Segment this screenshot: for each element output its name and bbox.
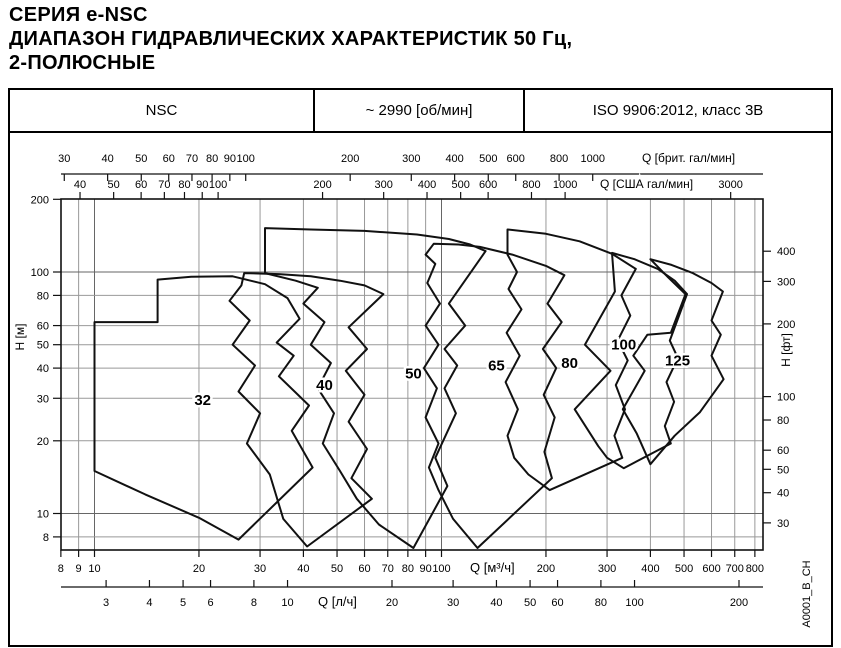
tick-label-h-ft: 60 <box>777 445 789 457</box>
page-title: СЕРИЯ e-NSC ДИАПАЗОН ГИДРАВЛИЧЕСКИХ ХАРА… <box>9 3 572 75</box>
tick-label-imp-gpm: 300 <box>402 153 420 165</box>
tick-label-m3h: 600 <box>702 563 720 575</box>
tick-label-ls: 20 <box>386 597 398 609</box>
tick-label-m3h: 70 <box>382 563 394 575</box>
tick-label-imp-gpm: 800 <box>550 153 568 165</box>
header-series: NSC <box>10 90 315 131</box>
tick-label-h-m: 200 <box>31 194 49 206</box>
axis-title-ls: Q [л/ч] <box>318 594 357 609</box>
tick-label-h-m: 100 <box>31 267 49 279</box>
tick-label-us-gpm: 40 <box>74 179 86 191</box>
tick-label-us-gpm: 200 <box>313 179 331 191</box>
tick-label-h-ft: 40 <box>777 488 789 500</box>
tick-label-h-ft: 200 <box>777 319 795 331</box>
tick-label-ls: 200 <box>730 597 748 609</box>
tick-label-us-gpm: 50 <box>108 179 120 191</box>
tick-label-imp-gpm: 90 <box>224 153 236 165</box>
tick-label-imp-gpm: 500 <box>479 153 497 165</box>
tick-label-us-gpm: 400 <box>418 179 436 191</box>
tick-label-ls: 30 <box>447 597 459 609</box>
tick-label-ls: 5 <box>180 597 186 609</box>
tick-label-ls: 4 <box>146 597 152 609</box>
tick-label-m3h: 700 <box>726 563 744 575</box>
tick-label-imp-gpm: 80 <box>206 153 218 165</box>
tick-label-ls: 3 <box>103 597 109 609</box>
tick-label-ls: 40 <box>490 597 502 609</box>
chart-frame: NSC ~ 2990 [об/мин] ISO 9906:2012, класс… <box>8 88 833 647</box>
tick-label-m3h: 20 <box>193 563 205 575</box>
axis-title-m3h: Q [м³/ч] <box>470 560 515 575</box>
tick-label-us-gpm: 100 <box>209 179 227 191</box>
tick-label-m3h: 80 <box>402 563 414 575</box>
header-standard: ISO 9906:2012, класс 3В <box>525 90 831 131</box>
tick-label-ls: 6 <box>207 597 213 609</box>
tick-label-h-m: 20 <box>37 436 49 448</box>
tick-label-us-gpm: 80 <box>178 179 190 191</box>
tick-label-imp-gpm: 1000 <box>580 153 604 165</box>
tick-label-h-m: 40 <box>37 363 49 375</box>
region-label-125: 125 <box>665 353 690 370</box>
region-label-100: 100 <box>611 337 636 354</box>
tick-label-imp-gpm: 60 <box>163 153 175 165</box>
tick-label-h-m: 30 <box>37 393 49 405</box>
tick-label-ls: 8 <box>251 597 257 609</box>
tick-label-ls: 10 <box>281 597 293 609</box>
tick-label-us-gpm: 60 <box>135 179 147 191</box>
region-label-32: 32 <box>194 392 211 409</box>
tick-label-h-m: 60 <box>37 321 49 333</box>
tick-label-imp-gpm: 30 <box>58 153 70 165</box>
axis-title-h-m: H [м] <box>13 324 27 351</box>
tick-label-m3h: 8 <box>58 563 64 575</box>
tick-label-m3h: 50 <box>331 563 343 575</box>
tick-label-m3h: 40 <box>297 563 309 575</box>
tick-label-h-ft: 400 <box>777 246 795 258</box>
tick-label-imp-gpm: 70 <box>186 153 198 165</box>
tick-label-us-gpm: 800 <box>522 179 540 191</box>
tick-label-h-ft: 30 <box>777 518 789 530</box>
tick-label-m3h: 800 <box>746 563 764 575</box>
tick-label-imp-gpm: 100 <box>237 153 255 165</box>
tick-label-m3h: 60 <box>358 563 370 575</box>
tick-label-us-gpm: 1000 <box>553 179 577 191</box>
tick-label-h-ft: 300 <box>777 276 795 288</box>
tick-label-ls: 100 <box>625 597 643 609</box>
tick-label-us-gpm: 300 <box>374 179 392 191</box>
tick-label-us-gpm: 500 <box>451 179 469 191</box>
tick-label-h-ft: 100 <box>777 392 795 404</box>
region-label-65: 65 <box>488 358 505 375</box>
axis-title-us-gpm: Q [США гал/мин] <box>600 177 693 191</box>
tick-label-imp-gpm: 40 <box>102 153 114 165</box>
tick-label-m3h: 500 <box>675 563 693 575</box>
tick-label-m3h: 90 <box>419 563 431 575</box>
tick-label-h-m: 8 <box>43 532 49 544</box>
tick-label-imp-gpm: 400 <box>445 153 463 165</box>
title-line-1: СЕРИЯ e-NSC <box>9 3 572 27</box>
tick-label-imp-gpm: 50 <box>135 153 147 165</box>
tick-label-h-ft: 80 <box>777 415 789 427</box>
region-label-80: 80 <box>561 355 578 372</box>
tick-label-us-gpm: 3000 <box>718 179 742 191</box>
title-line-2: ДИАПАЗОН ГИДРАВЛИЧЕСКИХ ХАРАКТЕРИСТИК 50… <box>9 27 572 51</box>
tick-label-m3h: 300 <box>598 563 616 575</box>
tick-label-us-gpm: 90 <box>196 179 208 191</box>
tick-label-imp-gpm: 200 <box>341 153 359 165</box>
pump-envelope-65 <box>424 244 565 548</box>
tick-label-m3h: 30 <box>254 563 266 575</box>
tick-label-ls: 60 <box>551 597 563 609</box>
tick-label-ls: 50 <box>524 597 536 609</box>
tick-label-h-m: 10 <box>37 508 49 520</box>
tick-label-us-gpm: 70 <box>158 179 170 191</box>
tick-label-h-m: 50 <box>37 340 49 352</box>
axis-title-imp-gpm: Q [брит. гал/мин] <box>642 151 735 165</box>
tick-label-m3h: 10 <box>88 563 100 575</box>
tick-label-m3h: 200 <box>537 563 555 575</box>
header-speed: ~ 2990 [об/мин] <box>315 90 525 131</box>
chart-header: NSC ~ 2990 [об/мин] ISO 9906:2012, класс… <box>10 90 831 133</box>
pump-range-chart-page: СЕРИЯ e-NSC ДИАПАЗОН ГИДРАВЛИЧЕСКИХ ХАРА… <box>0 0 841 648</box>
tick-label-m3h: 100 <box>432 563 450 575</box>
tick-label-us-gpm: 600 <box>479 179 497 191</box>
region-label-40: 40 <box>316 377 333 394</box>
region-label-50: 50 <box>405 365 422 382</box>
tick-label-m3h: 400 <box>641 563 659 575</box>
tick-label-imp-gpm: 600 <box>507 153 525 165</box>
tick-label-m3h: 9 <box>76 563 82 575</box>
tick-label-h-ft: 50 <box>777 464 789 476</box>
axis-title-h-ft: H [фт] <box>779 333 793 367</box>
hydraulic-range-chart: 3240506580100125304050607080901002003004… <box>10 133 831 645</box>
tick-label-h-m: 80 <box>37 290 49 302</box>
drawing-number: A0001_B_CH <box>801 560 813 627</box>
tick-label-ls: 80 <box>595 597 607 609</box>
title-line-3: 2-ПОЛЮСНЫЕ <box>9 51 572 75</box>
